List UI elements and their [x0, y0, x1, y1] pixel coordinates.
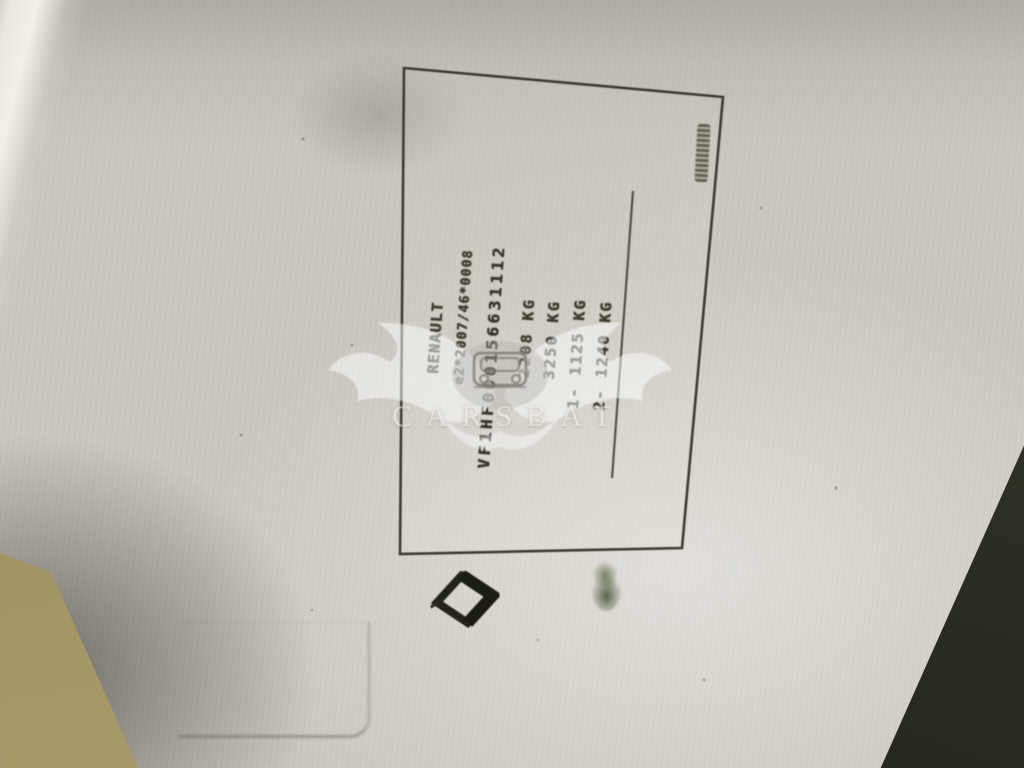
- carsbat-watermark: [320, 295, 680, 465]
- sticker-outline-ghost: [178, 622, 370, 738]
- renault-diamond-logo: [427, 567, 504, 635]
- watermark-letters: CARSBAT: [392, 400, 625, 434]
- watermark-car-icon: [452, 341, 548, 409]
- inspection-stamp: [591, 561, 622, 611]
- photo-vin-plate: RENAULT e2*2007/46*0008 VF1HF00015663111…: [0, 0, 1024, 768]
